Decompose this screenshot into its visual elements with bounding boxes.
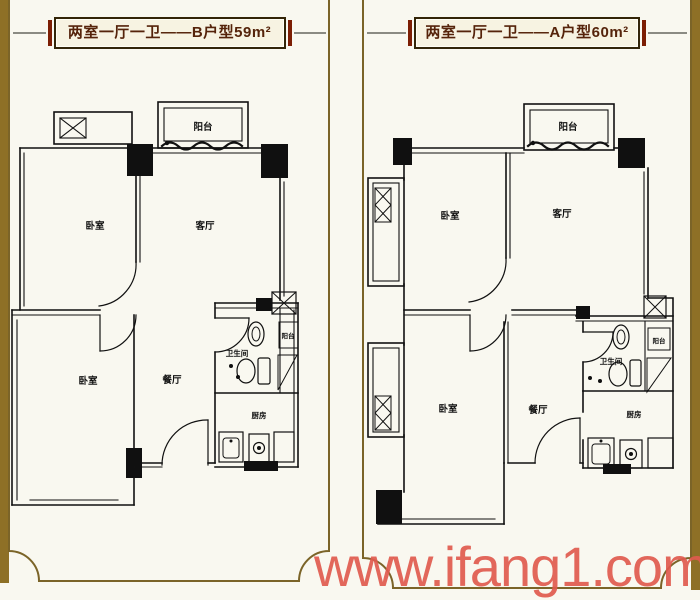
room-label-balcony-top-B: 阳台 <box>193 121 213 133</box>
banner-line <box>294 32 327 34</box>
banner-line <box>648 32 687 34</box>
room-label-bedroom-lower-B: 卧室 <box>78 375 98 387</box>
plan-title-B: 两室一厅一卫——B户型59m² <box>54 17 286 49</box>
floorplans-canvas: 阳台 卧室 客厅 卧室 餐厅 卫生间 厨房 阳台 <box>0 0 700 600</box>
toilet-icon <box>229 358 270 384</box>
room-label-bedroom-upper-A: 卧室 <box>440 210 460 222</box>
door-arcs <box>99 262 249 465</box>
plan-title-A: 两室一厅一卫——A户型60m² <box>414 17 640 49</box>
banner-line <box>367 32 406 34</box>
door-arcs <box>469 258 613 463</box>
sink-icon <box>613 325 629 349</box>
watermark-text: www.ifang1.com <box>314 534 700 599</box>
room-label-dining-B: 餐厅 <box>161 374 182 386</box>
sink-icon <box>248 322 264 346</box>
frame-A <box>363 0 691 588</box>
kitchen-fixtures <box>219 432 294 462</box>
floorplan-B: 阳台 卧室 客厅 卧室 餐厅 卫生间 厨房 阳台 <box>12 102 298 505</box>
title-banner-B: 两室一厅一卫——B户型59m² <box>13 17 326 49</box>
banner-tick <box>408 20 412 46</box>
floorplan-A: 阳台 卧室 客厅 卧室 餐厅 卫生间 厨房 阳台 <box>368 104 673 524</box>
banner-line <box>13 32 46 34</box>
room-label-bathroom-B: 卫生间 <box>226 348 249 358</box>
floorplan-page: 阳台 卧室 客厅 卧室 餐厅 卫生间 厨房 阳台 <box>0 0 700 600</box>
frame-B <box>9 0 329 581</box>
room-label-balcony-side-B: 阳台 <box>282 331 296 340</box>
room-label-kitchen-B: 厨房 <box>252 410 267 420</box>
window-bay-upper <box>368 178 404 286</box>
room-label-kitchen-A: 厨房 <box>627 409 642 419</box>
ac-unit-icon <box>54 112 132 144</box>
room-label-living-A: 客厅 <box>551 208 572 220</box>
banner-tick <box>48 20 52 46</box>
room-label-balcony-top-A: 阳台 <box>558 121 578 133</box>
room-label-bedroom-upper-B: 卧室 <box>85 220 105 232</box>
room-label-living-B: 客厅 <box>194 220 215 232</box>
room-label-bathroom-A: 卫生间 <box>600 356 623 366</box>
kitchen-fixtures <box>588 438 673 468</box>
left-edge-stripe <box>0 0 9 583</box>
room-label-balcony-side-A: 阳台 <box>653 336 667 345</box>
page-frame <box>0 0 700 590</box>
right-edge-stripe <box>691 0 700 590</box>
window-bay-lower <box>368 343 404 437</box>
room-label-bedroom-lower-A: 卧室 <box>438 403 458 415</box>
title-banner-A: 两室一厅一卫——A户型60m² <box>367 17 687 49</box>
banner-tick <box>642 20 646 46</box>
banner-tick <box>288 20 292 46</box>
room-label-dining-A: 餐厅 <box>527 404 548 416</box>
column-blocks <box>126 144 288 478</box>
